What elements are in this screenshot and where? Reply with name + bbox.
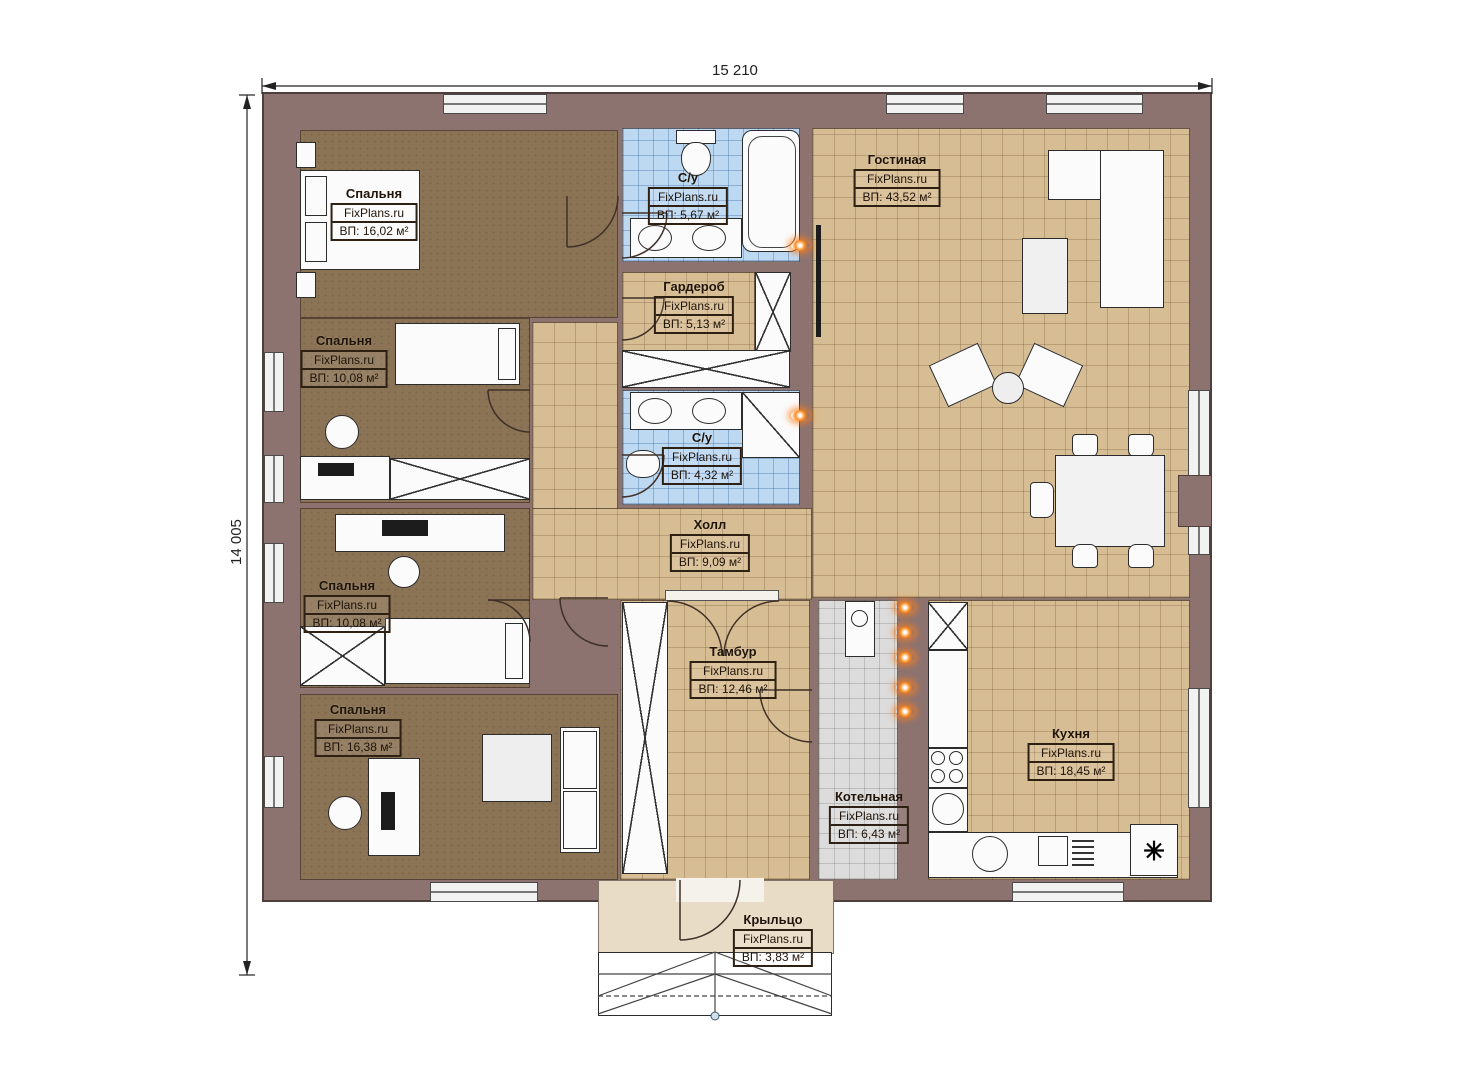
fridge: ✳: [1130, 824, 1178, 876]
oven: [1038, 836, 1068, 866]
utility-marker-icon: [791, 240, 809, 251]
oven-grill: [1072, 836, 1094, 866]
computer-monitor: [318, 463, 354, 476]
window-left-1: [264, 352, 284, 412]
tv: [816, 225, 821, 337]
window-top-3: [1046, 94, 1143, 114]
utility-marker-icon: [791, 410, 809, 421]
wardrobe-cabinet: [390, 458, 530, 500]
sofa-cushion: [563, 791, 597, 849]
brand-text: FixPlans.ru: [303, 352, 386, 368]
wardrobe-cabinet: [622, 350, 790, 388]
kitchen-counter: [928, 650, 968, 748]
area-text: ВП: 10,08 м²: [306, 613, 389, 631]
dimension-width-label: 15 210: [712, 62, 758, 79]
sink: [638, 225, 672, 251]
printer: [382, 520, 428, 536]
wardrobe-cabinet: [755, 272, 791, 352]
table: [482, 734, 552, 802]
room-label-kitchen: Кухня FixPlans.ruВП: 18,45 м²: [1028, 726, 1115, 781]
window-left-3: [264, 543, 284, 603]
room-label-living: Гостиная FixPlans.ruВП: 43,52 м²: [854, 152, 941, 207]
nightstand: [296, 272, 316, 298]
dining-chair: [1030, 482, 1054, 518]
computer-monitor: [381, 792, 395, 830]
area-text: ВП: 43,52 м²: [856, 187, 939, 205]
window-left-2: [264, 455, 284, 503]
boiler-gauge: [851, 610, 868, 627]
wardrobe-cabinet: [300, 626, 385, 686]
room-label-bath-1: С/у FixPlans.ruВП: 5,67 м²: [648, 170, 728, 225]
window-top-1: [443, 94, 547, 114]
area-text: ВП: 18,45 м²: [1030, 761, 1113, 779]
area-text: ВП: 12,46 м²: [692, 679, 775, 697]
shower: [742, 392, 800, 458]
room-label-wardrobe: Гардероб FixPlans.ruВП: 5,13 м²: [654, 279, 734, 334]
kitchen-sink: [932, 793, 964, 825]
burner: [931, 751, 945, 765]
kitchen-cabinet: [928, 602, 968, 650]
desk-chair: [388, 556, 420, 588]
tall-closet: [622, 602, 668, 874]
brand-text: FixPlans.ru: [1030, 745, 1113, 761]
brand-text: FixPlans.ru: [333, 205, 416, 221]
area-text: ВП: 5,67 м²: [650, 205, 726, 223]
window-bottom-1: [430, 882, 538, 902]
room-label-porch: Крыльцо FixPlans.ruВП: 3,83 м²: [733, 912, 813, 967]
area-text: ВП: 5,13 м²: [656, 314, 732, 332]
brand-text: FixPlans.ru: [831, 808, 907, 824]
brand-text: FixPlans.ru: [672, 536, 748, 552]
dimension-height-label: 14 005: [228, 519, 245, 565]
sink: [692, 225, 726, 251]
area-text: ВП: 16,38 м²: [317, 737, 400, 755]
round-table: [992, 372, 1024, 404]
nightstand: [296, 142, 316, 168]
room-label-bedroom-1: Спальня FixPlans.ruВП: 16,02 м²: [331, 186, 418, 241]
sofa-cushion: [563, 731, 597, 789]
burner: [949, 751, 963, 765]
window-right-2: [1188, 688, 1210, 808]
room-label-bath-2: С/у FixPlans.ruВП: 4,32 м²: [662, 430, 742, 485]
room-label-vestibule: Тамбур FixPlans.ruВП: 12,46 м²: [690, 644, 777, 699]
area-text: ВП: 6,43 м²: [831, 824, 907, 842]
dining-table: [1055, 455, 1165, 547]
pillow: [305, 222, 327, 262]
dining-chair: [1128, 544, 1154, 568]
burner: [931, 769, 945, 783]
brand-text: FixPlans.ru: [692, 663, 775, 679]
utility-marker-icon: [896, 652, 914, 663]
area-text: ВП: 4,32 м²: [664, 465, 740, 483]
room-label-boiler: Котельная FixPlans.ruВП: 6,43 м²: [829, 789, 909, 844]
floor-plan-canvas: 15 210 14 005: [0, 0, 1473, 1080]
brand-text: FixPlans.ru: [735, 931, 811, 947]
area-text: ВП: 3,83 м²: [735, 947, 811, 965]
desk-chair: [328, 796, 362, 830]
brand-text: FixPlans.ru: [656, 298, 732, 314]
window-left-4: [264, 756, 284, 808]
plant: [325, 415, 359, 449]
utility-marker-icon: [896, 682, 914, 693]
pillow: [498, 328, 516, 380]
area-text: ВП: 10,08 м²: [303, 368, 386, 386]
window-right-1: [1188, 390, 1210, 555]
washing-machine: [972, 836, 1008, 872]
window-bottom-2: [1012, 882, 1124, 902]
utility-marker-icon: [896, 627, 914, 638]
porch-door-gap: [676, 878, 764, 902]
bathtub-inner: [748, 136, 796, 248]
brand-text: FixPlans.ru: [317, 721, 400, 737]
area-text: ВП: 16,02 м²: [333, 221, 416, 239]
pillow: [305, 176, 327, 216]
toilet: [626, 450, 660, 478]
dining-chair: [1072, 544, 1098, 568]
room-label-bedroom-4: Спальня FixPlans.ruВП: 16,38 м²: [315, 702, 402, 757]
brand-text: FixPlans.ru: [856, 171, 939, 187]
room-label-bedroom-3: Спальня FixPlans.ruВП: 10,08 м²: [304, 578, 391, 633]
side-table: [1022, 238, 1068, 314]
utility-marker-icon: [896, 706, 914, 717]
burner: [949, 769, 963, 783]
area-text: ВП: 9,09 м²: [672, 552, 748, 570]
sink: [638, 398, 672, 424]
wall-pier: [1178, 475, 1212, 527]
window-top-2: [886, 94, 964, 114]
brand-text: FixPlans.ru: [650, 189, 726, 205]
corner-sofa-arm: [1100, 150, 1164, 308]
room-label-hall: Холл FixPlans.ruВП: 9,09 м²: [670, 517, 750, 572]
brand-text: FixPlans.ru: [664, 449, 740, 465]
brand-text: FixPlans.ru: [306, 597, 389, 613]
sink: [692, 398, 726, 424]
corridor: [532, 322, 618, 512]
pillow: [505, 623, 523, 679]
utility-marker-icon: [896, 602, 914, 613]
entry-door-threshold: [665, 590, 779, 601]
room-label-bedroom-2: Спальня FixPlans.ruВП: 10,08 м²: [301, 333, 388, 388]
